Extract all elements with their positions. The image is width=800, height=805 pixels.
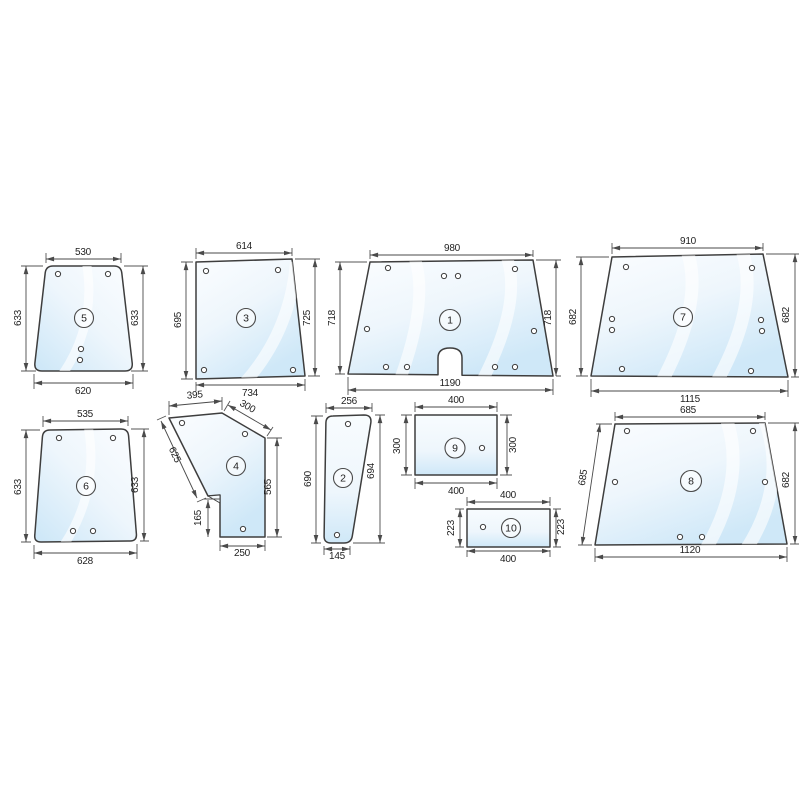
mounting-hole <box>275 267 280 272</box>
dim-label-top: 395 <box>186 389 204 401</box>
dim-label-right: 725 <box>302 309 313 326</box>
dim-label-left: 682 <box>568 308 579 325</box>
mounting-hole <box>677 534 682 539</box>
dim-label-left-lower: 165 <box>193 509 204 526</box>
mounting-hole <box>441 273 446 278</box>
mounting-hole <box>480 524 485 529</box>
mounting-hole <box>242 431 247 436</box>
dim-label-right: 300 <box>508 436 519 453</box>
piece-6-group: 6 535 628 633 633 <box>13 409 149 567</box>
mounting-hole <box>78 346 83 351</box>
mounting-hole <box>612 479 617 484</box>
dim-label-top: 535 <box>77 409 94 420</box>
dim-label-top: 400 <box>500 490 517 501</box>
dim-label-right: 682 <box>781 471 792 488</box>
piece-9-group: 9 400 400 300 300 <box>392 395 519 497</box>
dim-label-top: 400 <box>448 395 465 406</box>
dim-label-left: 695 <box>173 311 184 328</box>
part-number: 7 <box>680 312 686 324</box>
part-number: 2 <box>340 473 346 485</box>
mounting-hole <box>750 428 755 433</box>
mounting-hole <box>203 268 208 273</box>
dim-label-top: 685 <box>680 405 697 416</box>
dim-label-bottom: 1120 <box>680 545 701 556</box>
mounting-hole <box>492 364 497 369</box>
dim-label-left: 633 <box>13 309 24 326</box>
part-number: 4 <box>233 461 239 473</box>
dim-label-top: 614 <box>236 241 253 252</box>
piece-3-group: 3 614 734 695 725 <box>173 241 320 399</box>
dim-label-top-slant: 300 <box>238 398 258 416</box>
piece-2-group: 2 256 145 690 694 <box>303 396 385 562</box>
mounting-hole <box>90 528 95 533</box>
piece-5-group: 5 530 620 633 633 <box>13 247 148 397</box>
part-number: 10 <box>505 523 517 535</box>
dim-label-left: 223 <box>446 519 457 536</box>
dim-label-bottom: 734 <box>242 388 259 399</box>
dim-label-bottom: 400 <box>500 554 517 565</box>
dim-label-top: 980 <box>444 243 461 254</box>
dim-label-top: 910 <box>680 236 697 247</box>
dimension-line-top <box>169 401 222 406</box>
dim-label-right: 694 <box>366 462 377 479</box>
mounting-hole <box>762 479 767 484</box>
piece-10-group: 10 400 400 223 223 <box>446 490 567 565</box>
dim-label-top: 256 <box>341 396 358 407</box>
dim-label-bottom: 250 <box>234 548 251 559</box>
dim-label-left: 300 <box>392 437 403 454</box>
part-number: 6 <box>83 481 89 493</box>
mounting-hole <box>623 264 628 269</box>
dim-label-right: 633 <box>130 309 141 326</box>
mounting-hole <box>179 420 184 425</box>
dim-label-left: 690 <box>303 470 314 487</box>
part-number: 3 <box>243 313 249 325</box>
part-number: 5 <box>81 313 87 325</box>
dim-label-left: 718 <box>327 309 338 326</box>
mounting-hole <box>699 534 704 539</box>
glass-panel-4 <box>169 413 265 537</box>
mounting-hole <box>758 317 763 322</box>
part-number: 1 <box>447 315 453 327</box>
mounting-hole <box>609 327 614 332</box>
dim-label-top: 530 <box>75 247 92 258</box>
mounting-hole <box>56 435 61 440</box>
mounting-hole <box>383 364 388 369</box>
dim-label-left: 685 <box>577 468 590 486</box>
dim-label-right: 565 <box>263 478 274 495</box>
mounting-hole <box>404 364 409 369</box>
piece-8-group: 8 685 1120 685 682 <box>577 405 799 562</box>
mounting-hole <box>334 532 339 537</box>
mounting-hole <box>512 364 517 369</box>
glass-parts-diagram: 5 530 620 633 633 3 614 734 695 725 <box>0 0 800 800</box>
part-number: 9 <box>452 443 458 455</box>
mounting-hole <box>531 328 536 333</box>
mounting-hole <box>77 357 82 362</box>
piece-1-group: 1 980 1190 718 718 <box>327 243 561 395</box>
piece-7-group: 7 910 1115 682 682 <box>568 236 799 405</box>
mounting-hole <box>110 435 115 440</box>
dim-label-right: 682 <box>781 306 792 323</box>
mounting-hole <box>748 368 753 373</box>
dim-label-right: 633 <box>130 476 141 493</box>
mounting-hole <box>55 271 60 276</box>
mounting-hole <box>479 445 484 450</box>
part-number: 8 <box>688 476 694 488</box>
mounting-hole <box>345 421 350 426</box>
mounting-hole <box>512 266 517 271</box>
dim-label-bottom: 400 <box>448 486 465 497</box>
mounting-hole <box>759 328 764 333</box>
dim-label-left: 633 <box>13 478 24 495</box>
mounting-hole <box>201 367 206 372</box>
dim-label-bottom: 1115 <box>680 394 701 405</box>
mounting-hole <box>609 316 614 321</box>
mounting-hole <box>749 265 754 270</box>
mounting-hole <box>624 428 629 433</box>
mounting-hole <box>385 265 390 270</box>
dim-label-bottom: 628 <box>77 556 94 567</box>
mounting-hole <box>105 271 110 276</box>
mounting-hole <box>70 528 75 533</box>
mounting-hole <box>364 326 369 331</box>
diagram-canvas: 5 530 620 633 633 3 614 734 695 725 <box>0 0 800 800</box>
dim-label-right: 223 <box>556 518 567 535</box>
dim-label-right: 718 <box>543 309 554 326</box>
mounting-hole <box>240 526 245 531</box>
dim-label-bottom: 145 <box>329 551 346 562</box>
piece-4-group: 4 395 300 625 565 165 250 <box>157 389 282 559</box>
mounting-hole <box>290 367 295 372</box>
mounting-hole <box>455 273 460 278</box>
dim-label-bottom: 1190 <box>440 378 461 389</box>
dim-label-bottom: 620 <box>75 386 92 397</box>
mounting-hole <box>619 366 624 371</box>
